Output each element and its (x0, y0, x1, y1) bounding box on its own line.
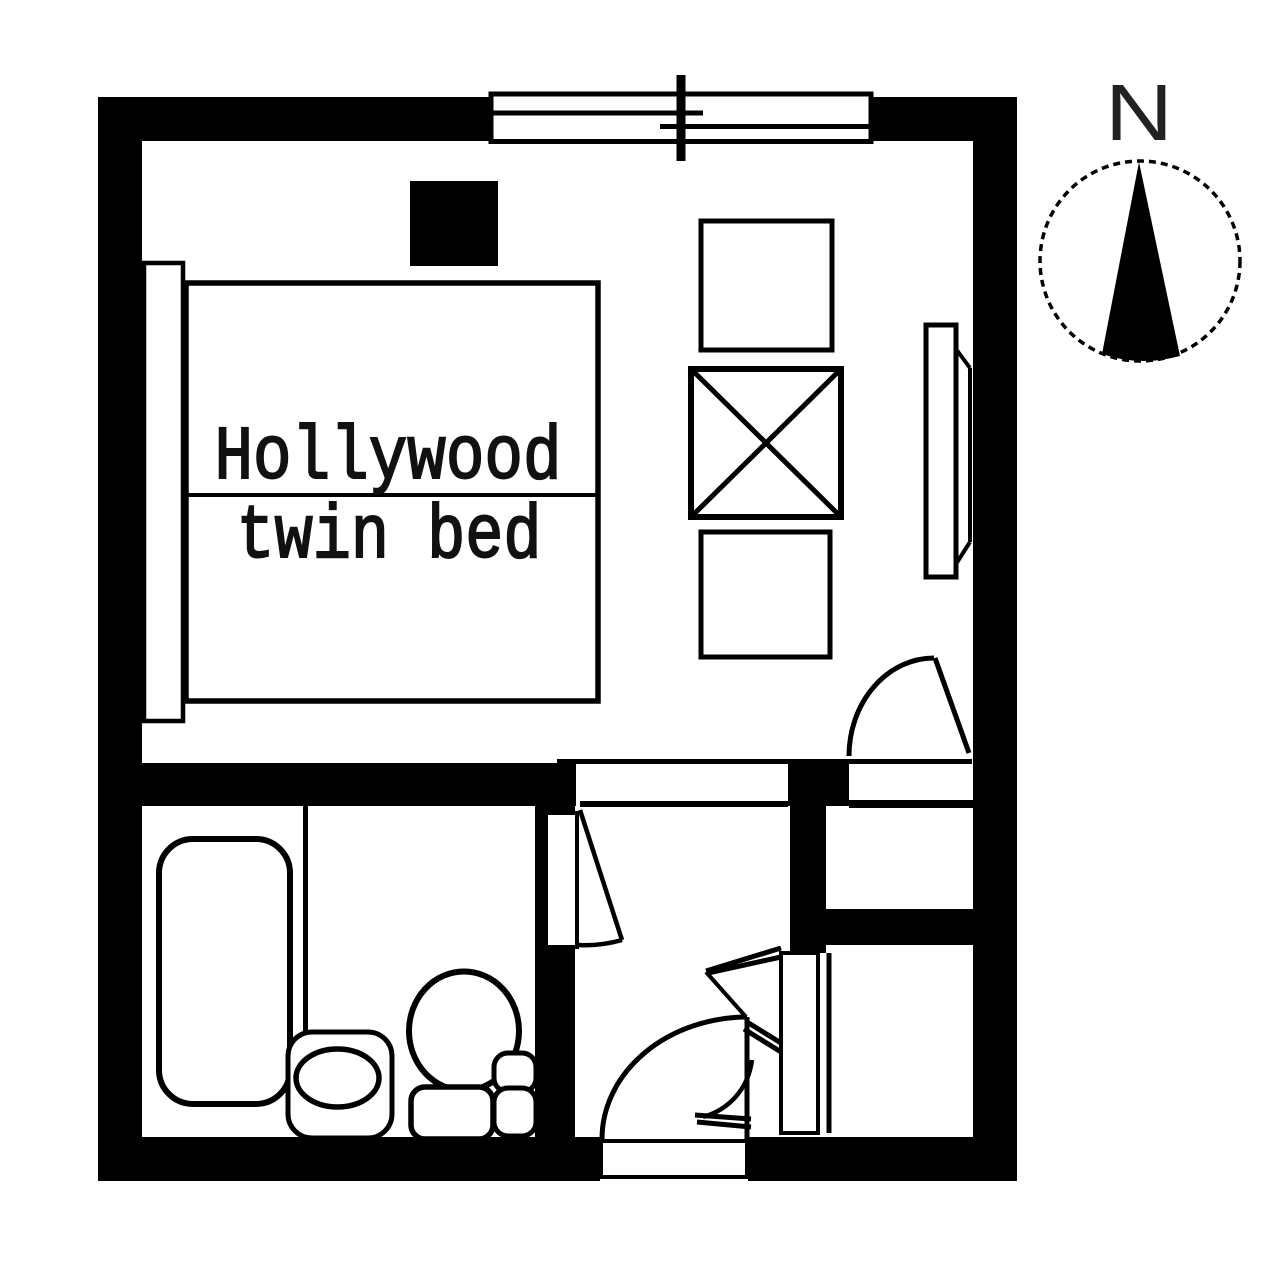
svg-text:Hollywood: Hollywood (215, 415, 562, 501)
svg-text:N: N (1105, 68, 1173, 157)
svg-text:twin bed: twin bed (237, 494, 542, 580)
